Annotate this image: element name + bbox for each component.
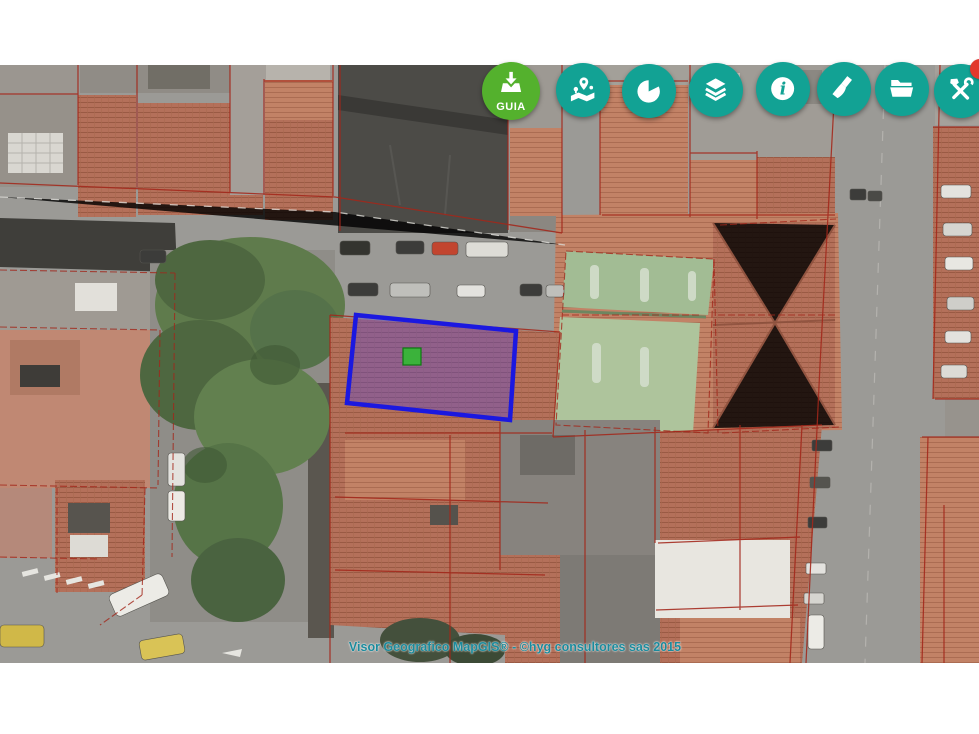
aerial-map: [0, 65, 979, 663]
layers-icon: [700, 74, 731, 105]
svg-text:i: i: [780, 79, 786, 99]
files-button[interactable]: [875, 62, 929, 116]
guia-label: GUIA: [482, 102, 540, 113]
tools-button[interactable]: [934, 64, 979, 118]
download-icon: [496, 70, 526, 100]
parcel-marker[interactable]: [403, 348, 421, 365]
tools-icon: [945, 75, 976, 106]
folder-icon: [886, 73, 917, 104]
map-pins-icon: [567, 74, 598, 105]
clean-button[interactable]: [817, 62, 871, 116]
info-icon: i: [767, 73, 798, 104]
selected-parcel-group: [347, 315, 516, 420]
locate-button[interactable]: [556, 63, 610, 117]
info-button[interactable]: i: [756, 62, 810, 116]
map-viewport[interactable]: Visor Geografico MapGIS® - ©hyg consulto…: [0, 65, 979, 663]
map-attribution: Visor Geografico MapGIS® - ©hyg consulto…: [349, 640, 681, 654]
layers-button[interactable]: [689, 63, 743, 117]
guia-button[interactable]: GUIA: [482, 62, 540, 120]
selected-parcel[interactable]: [347, 315, 516, 420]
charts-button[interactable]: [622, 64, 676, 118]
mapgis-viewer: Visor Geografico MapGIS® - ©hyg consulto…: [0, 0, 979, 734]
broom-icon: [828, 73, 859, 104]
pie-chart-icon: [633, 75, 664, 106]
